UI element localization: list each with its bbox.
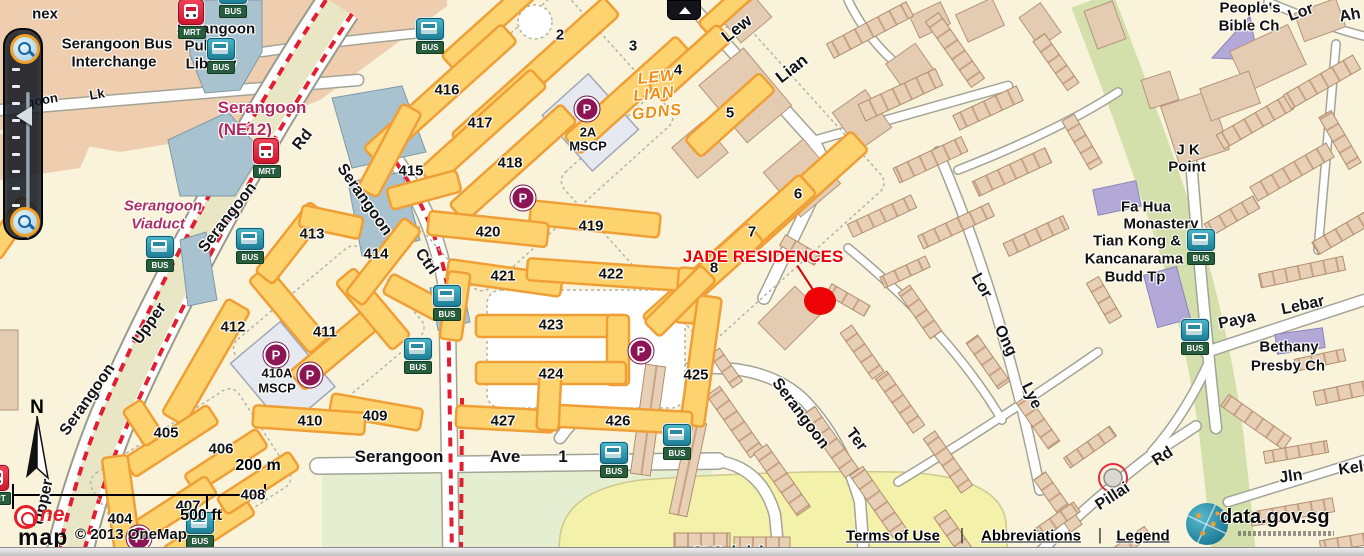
map-label: Viaduct <box>131 216 185 233</box>
map-label: Bible Ch <box>1219 18 1280 35</box>
map-label: Lor <box>967 270 995 301</box>
map-label: nex <box>32 6 58 23</box>
legend-link[interactable]: Legend <box>1116 528 1169 545</box>
bus-stop-icon: BUS <box>663 424 691 460</box>
map-label: Serangoon Bus <box>62 36 173 53</box>
map-label: Serangoon <box>218 98 307 118</box>
map-label: Paya <box>1217 308 1257 333</box>
map-label: Ter <box>842 425 871 455</box>
bus-stop-icon: BUS <box>404 338 432 374</box>
block-number: 422 <box>598 266 623 283</box>
map-label: Lebar <box>1280 293 1326 320</box>
map-label: MSCP <box>258 381 296 396</box>
block-number: 426 <box>605 413 630 430</box>
map-label: Jln <box>1278 466 1303 487</box>
map-label: Kancanarama <box>1085 251 1183 268</box>
map-label: Fa Hua <box>1121 199 1171 216</box>
block-number: 5 <box>726 105 734 122</box>
zoom-level-tick <box>12 153 20 156</box>
map-label: Interchange <box>71 54 156 71</box>
datagov-logo: data.gov.sg <box>1186 500 1364 548</box>
map-label: Lian <box>772 50 812 87</box>
map-label: Serangoon <box>124 198 202 215</box>
zoom-level-tick <box>12 136 20 139</box>
bus-stop-icon: BUS <box>219 0 247 18</box>
abbreviations-link[interactable]: Abbreviations <box>981 528 1081 545</box>
block-number: 414 <box>363 246 388 263</box>
jade-residences-label: JADE RESIDENCES <box>683 247 844 267</box>
map-label: Presby Ch <box>1251 358 1325 375</box>
block-number: 427 <box>490 413 515 430</box>
map-label: Budd Tp <box>1105 269 1166 286</box>
parking-icon: P <box>264 343 289 368</box>
block-number: 413 <box>299 226 324 243</box>
block-number: 404 <box>107 511 132 528</box>
mrt-station-icon: MRT <box>253 138 281 178</box>
block-number: 7 <box>748 224 756 241</box>
datagov-tagline <box>1238 531 1334 536</box>
block-number: 423 <box>538 317 563 334</box>
scale-imperial-label: 500 ft <box>180 507 222 525</box>
zoom-control[interactable] <box>3 28 43 240</box>
map-label: Ong <box>990 323 1020 360</box>
zoom-in-button[interactable] <box>10 34 40 64</box>
map-label: Serangoon <box>57 361 120 440</box>
north-indicator-label: N <box>30 397 44 419</box>
bus-stop-icon: BUS <box>1187 229 1215 265</box>
parking-icon: P <box>511 186 536 211</box>
parking-icon: P <box>629 339 654 364</box>
map-label: 410A <box>261 366 292 381</box>
terms-of-use-link[interactable]: Terms of Use <box>846 528 940 545</box>
zoom-out-button[interactable] <box>10 207 40 237</box>
map-label: Kel <box>1337 458 1364 479</box>
zoom-level-tick <box>12 85 20 88</box>
block-number: 418 <box>497 155 522 172</box>
block-number: 421 <box>490 268 515 285</box>
bus-stop-icon: BUS <box>600 442 628 478</box>
horizontal-scrollbar[interactable] <box>0 547 1364 556</box>
block-number: 411 <box>313 324 337 341</box>
zoom-level-tick <box>12 102 20 105</box>
map-label: 1 <box>558 447 567 467</box>
block-number: 408 <box>240 487 265 504</box>
map-label: Serangoon <box>768 375 833 453</box>
jade-marker-dot <box>804 287 836 315</box>
bus-stop-icon: BUS <box>1181 319 1209 355</box>
block-number: 409 <box>362 408 387 425</box>
bus-stop-icon: BUS <box>416 18 444 54</box>
footer-separator: | <box>1098 525 1102 545</box>
block-number: 406 <box>208 441 233 458</box>
block-number: 419 <box>578 218 603 235</box>
zoom-level-tick <box>12 204 20 207</box>
block-number: 2 <box>556 27 564 44</box>
mrt-station-icon: MRT <box>0 465 11 505</box>
datagov-label: data.gov.sg <box>1220 506 1330 529</box>
block-number: 417 <box>467 115 492 132</box>
bus-stop-icon: BUS <box>433 285 461 321</box>
map-label: (NE12) <box>218 120 272 140</box>
bus-stop-icon: BUS <box>207 38 235 74</box>
map-label: Point <box>1168 159 1206 176</box>
mrt-station-icon: MRT <box>178 0 206 39</box>
zoom-level-tick <box>12 187 20 190</box>
map-label: Rd <box>289 126 316 154</box>
map-label: Pillai <box>1092 479 1133 514</box>
block-number: 415 <box>398 163 423 180</box>
map-label: 2A <box>580 125 597 140</box>
scale-metric-label: 200 m <box>235 457 280 475</box>
map-label: Serangoon <box>355 447 444 467</box>
parking-icon: P <box>298 363 323 388</box>
block-number: 420 <box>475 224 500 241</box>
zoom-level-tick <box>12 170 20 173</box>
bus-stop-icon: BUS <box>146 236 174 272</box>
block-number: 6 <box>794 186 802 203</box>
map-label: GDNS <box>631 101 683 124</box>
map-label: Lor <box>1286 0 1316 26</box>
block-number: 424 <box>538 366 563 383</box>
bus-stop-icon: BUS <box>236 228 264 264</box>
map-label: Lye <box>1017 380 1045 412</box>
map-label: Serangoon <box>333 161 396 240</box>
zoom-level-tick <box>12 119 20 122</box>
map-label: Upper <box>129 300 170 348</box>
copyright-text: © 2013 OneMap <box>75 526 187 543</box>
footer-separator: | <box>960 525 964 545</box>
map-label: Bethany <box>1259 339 1318 356</box>
map-label: J K <box>1176 142 1199 159</box>
map-label: Ah <box>1338 5 1362 26</box>
block-number: 3 <box>629 38 637 55</box>
map-viewport[interactable]: nexSerangoon BusInterchangeSerangoonPubl… <box>0 0 1364 556</box>
map-labels-layer: nexSerangoon BusInterchangeSerangoonPubl… <box>0 0 1364 556</box>
block-number: 405 <box>153 425 178 442</box>
map-label: Ave <box>490 447 521 467</box>
map-label: People's <box>1219 0 1280 17</box>
block-number: 4 <box>674 62 682 79</box>
chevron-up-icon <box>679 7 691 14</box>
map-label: Lk <box>88 85 106 102</box>
block-number: 416 <box>434 82 459 99</box>
map-label: Rd <box>1149 444 1177 471</box>
zoom-level-tick <box>12 68 20 71</box>
block-number: 410 <box>297 413 322 430</box>
map-label: MSCP <box>569 139 607 154</box>
map-label: Ctrl <box>411 246 442 279</box>
map-label: Lew <box>718 11 756 47</box>
block-number: 425 <box>683 367 708 384</box>
parking-icon: P <box>575 97 600 122</box>
collapse-panel-button[interactable] <box>667 0 701 20</box>
zoom-slider-handle[interactable] <box>16 106 32 126</box>
block-number: 412 <box>220 319 245 336</box>
map-label: Tian Kong & <box>1093 233 1181 250</box>
